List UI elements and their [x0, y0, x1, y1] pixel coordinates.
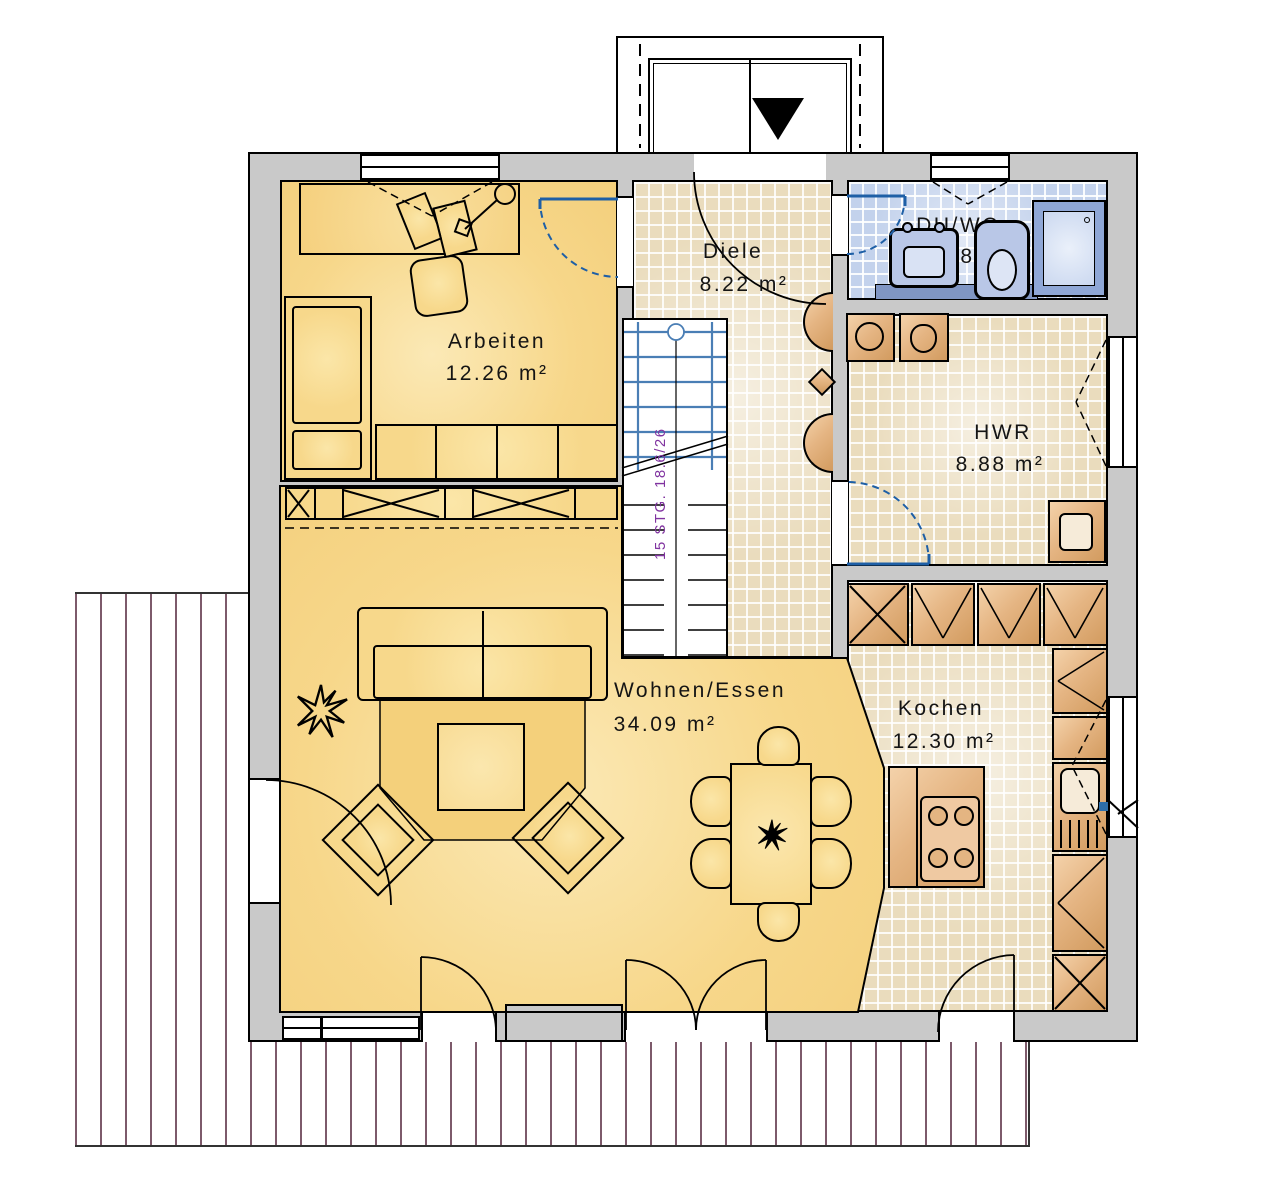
sofa [357, 607, 608, 701]
room-label-kochen: Kochen [898, 697, 984, 721]
armchair-seat [341, 803, 415, 877]
terrace-door-west-opening [250, 778, 280, 904]
kitchen-cabinet-corner [1052, 648, 1108, 714]
kitchen-cabinet [911, 583, 975, 646]
table-centerpiece-icon [755, 818, 789, 852]
closet-divider [472, 489, 474, 518]
sideboard-divider [435, 426, 437, 478]
room-area-hwr: 8.88 m² [956, 453, 1045, 477]
room-label-hwr: HWR [974, 421, 1032, 445]
kitchen-door-south-opening [938, 1012, 1015, 1042]
closet-row [285, 487, 618, 520]
window-wohnen-south [282, 1016, 420, 1040]
closet-divider [342, 489, 344, 518]
burner [928, 806, 948, 826]
burner [954, 806, 974, 826]
dishwasher-grill [1060, 820, 1100, 848]
floor-plan: DU/WC 3.78 m² [0, 0, 1285, 1200]
terrace-bottom [75, 1042, 1030, 1147]
window-arbeiten-north [360, 154, 500, 180]
entrance-door-opening [694, 154, 826, 180]
sideboard-divider [496, 426, 498, 478]
dining-chair-bottom [757, 902, 800, 942]
burner [954, 848, 974, 868]
window-duwc-north [930, 154, 1010, 180]
stair-label: 15 STG. 18.6/26 [652, 427, 669, 560]
room-area-diele: 8.22 m² [700, 273, 789, 297]
basin-tap [934, 222, 945, 233]
room-area-wohnen: 34.09 m² [614, 713, 717, 737]
centerpiece-burst [755, 818, 789, 852]
window-mullion [320, 1018, 323, 1038]
door-hwr-opening [832, 480, 848, 566]
door-arbeiten-opening [617, 196, 633, 288]
french-door-south-opening [624, 1012, 768, 1042]
room-label-diele: Diele [703, 240, 763, 264]
plant-burst [292, 682, 350, 740]
sideboard-divider [557, 426, 559, 478]
window-hwr-east [1108, 336, 1138, 468]
kitchen-island [888, 766, 985, 888]
guest-bed [284, 296, 372, 480]
room-area-kochen: 12.30 m² [893, 730, 996, 754]
dining-chair-top [757, 726, 800, 766]
basin-bowl [903, 246, 945, 278]
dining-chair-right-2 [810, 838, 852, 889]
entrance-arrow-icon [752, 98, 804, 140]
door-duwc-opening [832, 194, 848, 256]
toilet [974, 220, 1030, 300]
island-divider [916, 768, 918, 886]
dining-chair-right-1 [810, 776, 852, 827]
kitchen-cabinet [977, 583, 1041, 646]
office-chair [408, 254, 470, 319]
dryer [899, 313, 949, 362]
room-area-arbeiten: 12.26 m² [446, 362, 549, 386]
toilet-seat [987, 249, 1017, 291]
wall-stub-south [505, 1004, 623, 1042]
shower-drain [1084, 217, 1090, 223]
stove [920, 796, 980, 882]
kitchen-cabinet [1043, 583, 1108, 646]
terrace-door-south-opening [421, 1012, 497, 1042]
kitchen-cabinet [1052, 716, 1108, 760]
hwr-sink-unit [1048, 500, 1106, 563]
closet-divider [314, 489, 316, 518]
room-label-arbeiten: Arbeiten [448, 330, 546, 354]
plant-icon [292, 682, 350, 740]
sideboard [375, 424, 618, 480]
washbasin [889, 228, 959, 288]
washing-machine [846, 313, 895, 362]
coffee-table [437, 723, 525, 811]
sofa-divider [482, 611, 484, 699]
porch-door-divider [749, 60, 751, 152]
dryer-drum [910, 324, 937, 353]
washer-drum [855, 322, 884, 351]
window-kochen-east [1108, 696, 1138, 838]
shower [1032, 200, 1106, 297]
room-label-wohnen: Wohnen/Essen [614, 679, 786, 703]
bed-cushion [292, 430, 362, 470]
kitchen-sink [1060, 768, 1100, 814]
dining-chair-left-2 [690, 838, 732, 889]
hwr-sink-basin [1059, 513, 1093, 551]
burner [928, 848, 948, 868]
armchair-seat [531, 801, 605, 875]
basin-tap [902, 222, 913, 233]
kitchen-cabinet-tall [1052, 954, 1108, 1012]
kitchen-cabinet [1052, 854, 1108, 952]
staircase [622, 318, 728, 658]
kitchen-cabinet-tall [847, 583, 909, 646]
closet-divider [574, 489, 576, 518]
dining-chair-left-1 [690, 776, 732, 827]
closet-divider [444, 489, 446, 518]
bed-mattress [292, 306, 362, 424]
